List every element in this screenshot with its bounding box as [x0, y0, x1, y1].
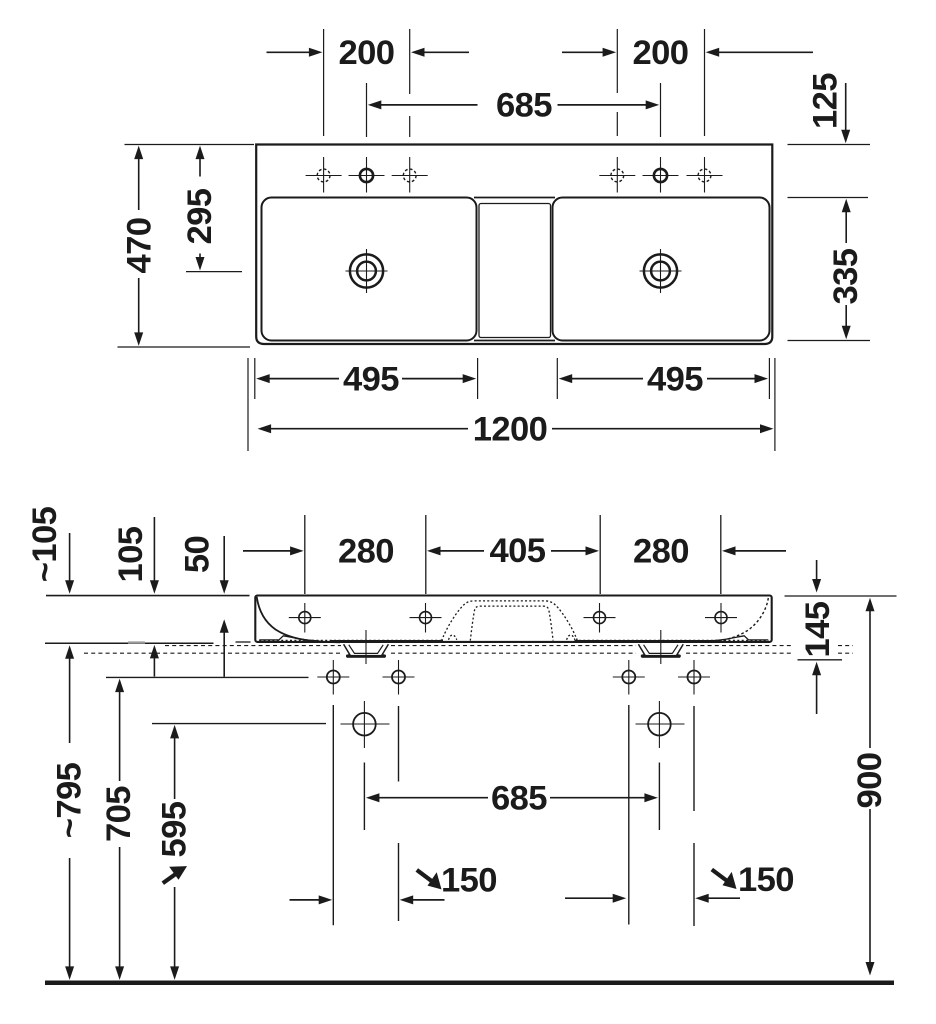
- svg-text:900: 900: [851, 753, 889, 809]
- svg-text:105: 105: [112, 526, 150, 582]
- svg-text:495: 495: [647, 360, 703, 398]
- svg-text:1200: 1200: [473, 410, 548, 448]
- svg-text:280: 280: [338, 532, 394, 570]
- svg-text:150: 150: [738, 861, 794, 899]
- svg-text:~795: ~795: [51, 762, 89, 838]
- svg-text:200: 200: [339, 34, 395, 72]
- svg-text:295: 295: [181, 188, 219, 244]
- svg-text:705: 705: [100, 786, 138, 842]
- svg-text:50: 50: [179, 536, 217, 573]
- svg-text:145: 145: [799, 601, 837, 657]
- svg-text:~105: ~105: [26, 506, 64, 582]
- svg-text:200: 200: [633, 34, 689, 72]
- svg-text:335: 335: [827, 248, 865, 304]
- svg-text:470: 470: [120, 218, 158, 274]
- svg-text:685: 685: [496, 87, 552, 125]
- svg-text:685: 685: [491, 779, 547, 817]
- svg-text:595: 595: [155, 801, 193, 857]
- svg-text:280: 280: [633, 532, 689, 570]
- svg-text:495: 495: [343, 360, 399, 398]
- svg-text:125: 125: [807, 73, 845, 129]
- svg-text:150: 150: [441, 861, 497, 899]
- svg-text:405: 405: [490, 532, 546, 570]
